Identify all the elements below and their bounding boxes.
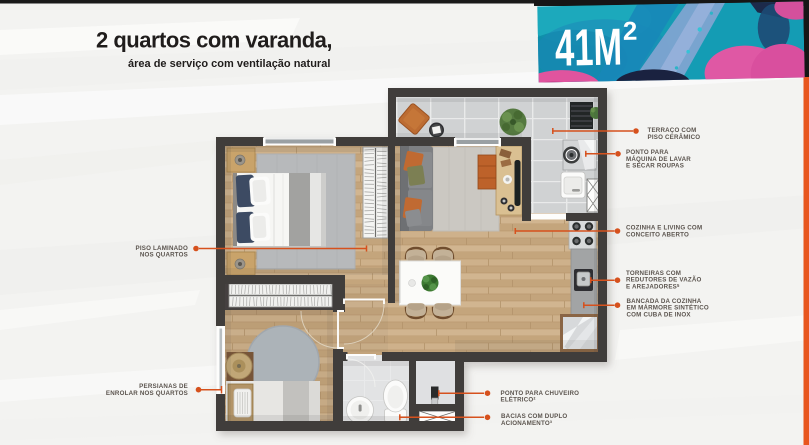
- svg-text:CONCEITO ABERTO: CONCEITO ABERTO: [626, 231, 689, 238]
- svg-text:ACIONAMENTO³: ACIONAMENTO³: [501, 420, 552, 427]
- svg-text:COM CUBA DE INOX: COM CUBA DE INOX: [627, 312, 692, 319]
- svg-text:NOS QUARTOS: NOS QUARTOS: [140, 251, 188, 258]
- svg-text:área de serviço com ventilação: área de serviço com ventilação natural: [128, 58, 330, 70]
- svg-text:E SECAR ROUPAS: E SECAR ROUPAS: [626, 163, 684, 170]
- svg-text:ELÉTRICO²: ELÉTRICO²: [501, 396, 536, 404]
- svg-text:ENROLAR NOS QUARTOS: ENROLAR NOS QUARTOS: [106, 390, 188, 397]
- svg-text:PISO CERÂMICO: PISO CERÂMICO: [648, 134, 701, 141]
- svg-text:2: 2: [622, 16, 637, 46]
- svg-text:E AREJADORES5: E AREJADORES5: [626, 283, 680, 291]
- svg-text:41M: 41M: [555, 18, 623, 77]
- svg-text:EM MÁRMORE SINTÉTICO: EM MÁRMORE SINTÉTICO: [627, 304, 709, 312]
- svg-text:2 quartos com varanda,: 2 quartos com varanda,: [96, 28, 332, 53]
- svg-text:PERSIANAS DE: PERSIANAS DE: [139, 383, 188, 390]
